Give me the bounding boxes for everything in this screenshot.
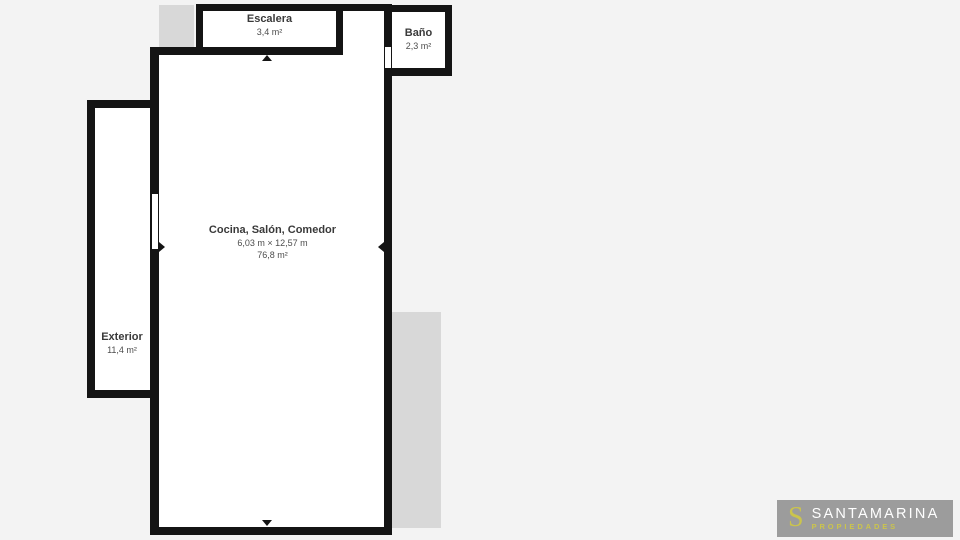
wall-main-top <box>150 47 343 55</box>
wall-main-bottom <box>150 527 392 535</box>
escalera-name: Escalera <box>196 13 343 26</box>
shadow-block-top-left <box>159 5 194 48</box>
logo-tagline: PROPIEDADES <box>812 522 940 531</box>
wall-exterior-bottom <box>87 390 159 398</box>
escalera-area: 3,4 m² <box>196 26 343 38</box>
exterior-area: 11,4 m² <box>88 344 156 356</box>
exterior-name: Exterior <box>88 331 156 344</box>
main-room-name: Cocina, Salón, Comedor <box>160 224 385 237</box>
logo-brand-name: SANTAMARINA <box>812 506 940 522</box>
arrow-up-icon <box>262 55 272 61</box>
window-marker-left-wall <box>151 193 159 250</box>
main-room-label: Cocina, Salón, Comedor 6,03 m × 12,57 m … <box>160 224 385 261</box>
exterior-label: Exterior 11,4 m² <box>88 331 156 356</box>
bano-name: Baño <box>388 27 449 40</box>
shadow-block-right <box>392 312 441 528</box>
wall-top <box>196 4 392 11</box>
main-room-dimensions: 6,03 m × 12,57 m <box>160 237 385 249</box>
arrow-down-icon <box>262 520 272 526</box>
wall-bano-top <box>392 5 452 12</box>
main-room-fill <box>154 50 388 531</box>
wall-main-right <box>384 4 392 535</box>
main-room-area: 76,8 m² <box>160 249 385 261</box>
agency-logo: S SANTAMARINA PROPIEDADES <box>777 500 953 537</box>
wall-main-left <box>150 47 159 533</box>
wall-exterior-top <box>87 100 155 108</box>
escalera-label: Escalera 3,4 m² <box>196 13 343 38</box>
logo-text-block: SANTAMARINA PROPIEDADES <box>812 506 940 531</box>
logo-s-icon: S <box>788 504 804 532</box>
floor-plan: Escalera 3,4 m² Baño 2,3 m² Cocina, Saló… <box>0 0 960 540</box>
bano-area: 2,3 m² <box>388 40 449 52</box>
wall-bano-bottom <box>385 68 452 76</box>
bano-label: Baño 2,3 m² <box>388 27 449 52</box>
